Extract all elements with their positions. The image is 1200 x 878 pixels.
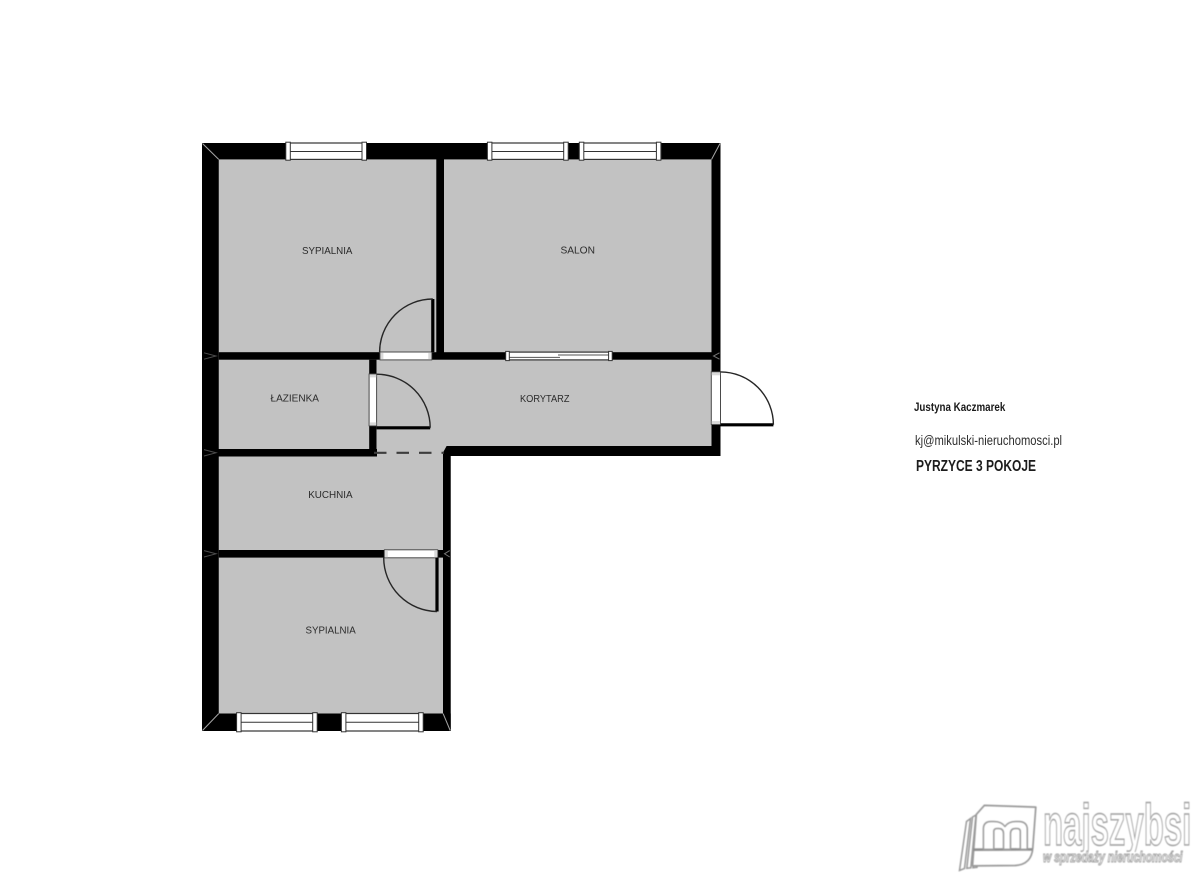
svg-text:SALON: SALON	[560, 246, 595, 257]
svg-text:SYPIALNIA: SYPIALNIA	[302, 246, 353, 257]
svg-text:KUCHNIA: KUCHNIA	[308, 490, 352, 501]
svg-text:SYPIALNIA: SYPIALNIA	[306, 626, 356, 637]
svg-text:ŁAZIENKA: ŁAZIENKA	[271, 394, 320, 405]
svg-text:KORYTARZ: KORYTARZ	[520, 394, 570, 405]
